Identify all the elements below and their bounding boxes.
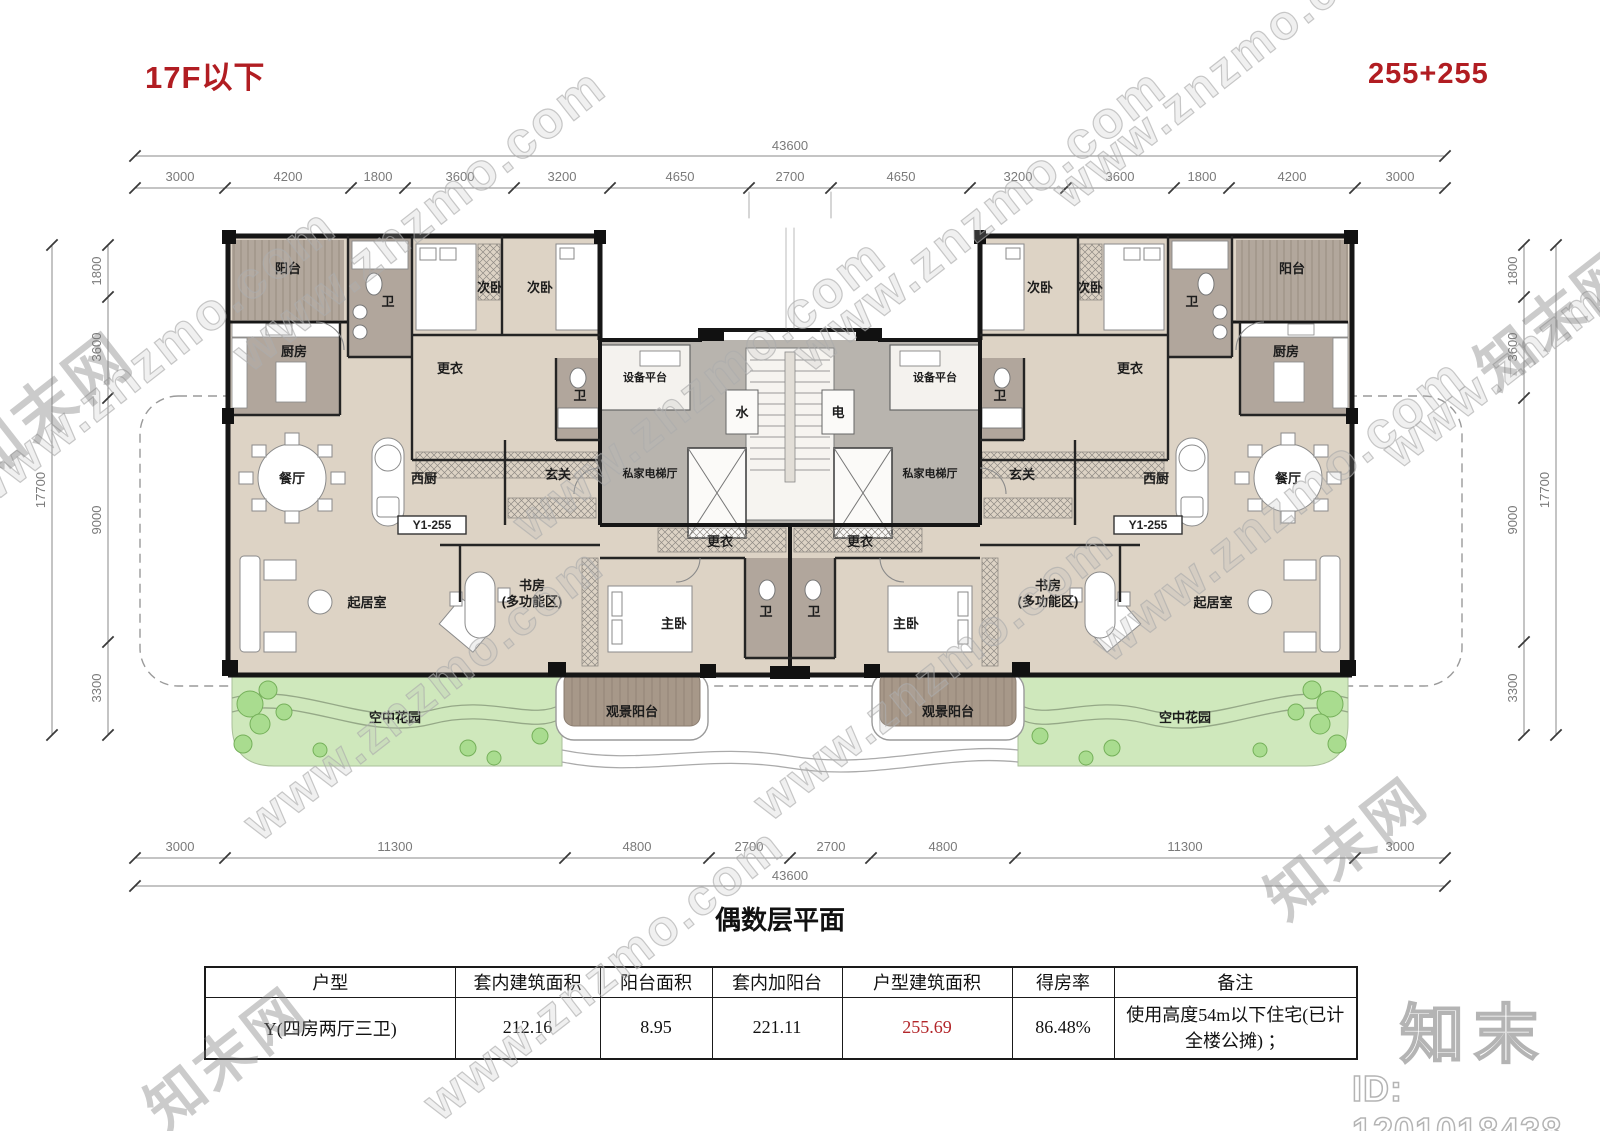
dim-top-9: 3600 — [1106, 169, 1135, 184]
room-label-electricity: 电 — [831, 405, 844, 420]
room-label-dining-right: 餐厅 — [1274, 471, 1301, 486]
sky-garden-left: 空中花园 — [232, 676, 562, 766]
table-header-row: 户型 套内建筑面积 阳台面积 套内加阳台 户型建筑面积 得房率 备注 — [205, 967, 1357, 997]
dim-top-8: 3200 — [1004, 169, 1033, 184]
core: 设备平台 设备平台 水 电 私家电梯厅 私家电梯厅 — [600, 340, 980, 538]
dim-top-5: 4650 — [666, 169, 695, 184]
room-label-elevator-hall-left: 私家电梯厅 — [623, 466, 678, 480]
room-label-bath-mid-left: 卫 — [573, 388, 586, 403]
room-label-equipment-right: 设备平台 — [913, 370, 957, 384]
site-logo: 知末 — [1400, 984, 1548, 1076]
room-label-master-left: 主卧 — [661, 616, 687, 631]
cell-gross-area: 255.69 — [842, 997, 1012, 1059]
cell-inner-area: 212.16 — [455, 997, 600, 1059]
table-data-row: Y(四房两厅三卫) 212.16 8.95 221.11 255.69 86.4… — [205, 997, 1357, 1059]
room-label-living-right: 起居室 — [1192, 595, 1232, 610]
dim-left-total: 17700 — [33, 472, 48, 508]
dim-right-total: 17700 — [1537, 472, 1552, 508]
room-label-study-right-1: 书房 — [1035, 578, 1061, 593]
dim-left-1: 3600 — [89, 333, 104, 362]
room-label-bedroom-left-1: 次卧 — [477, 280, 503, 295]
room-label-sky-garden-right: 空中花园 — [1159, 710, 1211, 725]
room-label-dressing-lower-right: 更衣 — [847, 534, 873, 549]
col-inner-plus-balcony: 套内加阳台 — [712, 967, 842, 997]
room-label-dressing-upper-right: 更衣 — [1117, 361, 1143, 376]
room-label-bedroom-left-2: 次卧 — [527, 280, 553, 295]
dim-left-3: 3300 — [89, 674, 104, 703]
dim-top-0: 3000 — [166, 169, 195, 184]
architectural-drawing: 17F以下 255+255 — [0, 0, 1600, 1131]
room-label-west-kitchen-left: 西厨 — [411, 471, 437, 486]
dim-top-4: 3200 — [548, 169, 577, 184]
room-label-elevator-hall-right: 私家电梯厅 — [903, 466, 958, 480]
room-label-dressing-lower-left: 更衣 — [707, 534, 733, 549]
col-remark: 备注 — [1114, 967, 1357, 997]
col-inner-area: 套内建筑面积 — [455, 967, 600, 997]
room-label-dining-left: 餐厅 — [278, 471, 305, 486]
dim-bottom-5: 4800 — [929, 839, 958, 854]
dim-bottom-7: 3000 — [1386, 839, 1415, 854]
table-title: 偶数层平面 — [204, 900, 1356, 937]
sofa-right — [1320, 556, 1340, 652]
room-label-view-balcony-left: 观景阳台 — [606, 704, 658, 719]
dim-top-total: 43600 — [772, 138, 808, 153]
room-label-kitchen-left: 厨房 — [281, 344, 307, 359]
unit-spec-table: 户型 套内建筑面积 阳台面积 套内加阳台 户型建筑面积 得房率 备注 Y(四房两… — [204, 966, 1358, 1060]
room-label-foyer-left: 玄关 — [545, 467, 571, 482]
cell-inner-plus-balcony: 221.11 — [712, 997, 842, 1059]
col-unit-type: 户型 — [205, 967, 455, 997]
room-label-kitchen-right: 厨房 — [1273, 344, 1299, 359]
dim-bottom-4: 2700 — [817, 839, 846, 854]
room-label-bedroom-right-1: 次卧 — [1077, 280, 1103, 295]
dim-top-12: 3000 — [1386, 169, 1415, 184]
dim-top-6: 2700 — [776, 169, 805, 184]
unit-code-left: Y1-255 — [413, 518, 452, 532]
view-balcony-right: 观景阳台 — [872, 672, 1024, 740]
room-label-balcony-left: 阳台 — [275, 261, 301, 276]
dim-bottom-3: 2700 — [735, 839, 764, 854]
dim-bottom-total: 43600 — [772, 868, 808, 883]
room-label-bath-top-right: 卫 — [1185, 294, 1198, 309]
room-label-bath-mid-right: 卫 — [993, 388, 1006, 403]
room-label-balcony-right: 阳台 — [1279, 261, 1305, 276]
study-table-right — [1085, 572, 1115, 638]
cell-unit-type: Y(四房两厅三卫) — [205, 997, 455, 1059]
room-label-living-left: 起居室 — [346, 595, 386, 610]
image-id-text: ID: 1201018438 — [1352, 1068, 1600, 1131]
col-efficiency: 得房率 — [1012, 967, 1114, 997]
room-label-study-left-2: (多功能区) — [502, 594, 563, 609]
room-label-equipment-left: 设备平台 — [623, 370, 667, 384]
dim-right-2: 9000 — [1505, 506, 1520, 535]
dim-bottom-2: 4800 — [623, 839, 652, 854]
sofa-left — [240, 556, 260, 652]
room-label-bath-master-left: 卫 — [759, 604, 772, 619]
dim-top-10: 1800 — [1188, 169, 1217, 184]
room-label-master-right: 主卧 — [893, 616, 919, 631]
room-label-foyer-right: 玄关 — [1009, 467, 1035, 482]
dim-top-3: 3600 — [446, 169, 475, 184]
dim-right-0: 1800 — [1505, 257, 1520, 286]
study-table-left — [465, 572, 495, 638]
room-label-bath-master-right: 卫 — [807, 604, 820, 619]
room-label-sky-garden-left: 空中花园 — [369, 710, 421, 725]
balcony-floor-right — [1236, 240, 1348, 320]
dim-left-0: 1800 — [89, 257, 104, 286]
dim-left-2: 9000 — [89, 506, 104, 535]
col-balcony-area: 阳台面积 — [600, 967, 712, 997]
room-label-dressing-upper-left: 更衣 — [437, 361, 463, 376]
dim-bottom-6: 11300 — [1167, 839, 1202, 854]
dim-top-2: 1800 — [364, 169, 393, 184]
dim-right-3: 3300 — [1505, 674, 1520, 703]
unit-code-right: Y1-255 — [1129, 518, 1168, 532]
cell-remark: 使用高度54m以下住宅(已计全楼公摊) ； — [1114, 997, 1357, 1059]
floor-plan-svg: 空中花园 空中花园 观景阳台 观景阳台 — [0, 0, 1600, 1131]
room-label-study-right-2: (多功能区) — [1018, 594, 1079, 609]
dim-top-7: 4650 — [887, 169, 916, 184]
col-gross-area: 户型建筑面积 — [842, 967, 1012, 997]
cell-efficiency: 86.48% — [1012, 997, 1114, 1059]
sky-garden-right: 空中花园 — [1018, 676, 1348, 766]
dim-bottom-1: 11300 — [377, 839, 412, 854]
room-label-water: 水 — [735, 405, 749, 420]
balcony-floor-left — [232, 240, 344, 320]
room-label-view-balcony-right: 观景阳台 — [922, 704, 974, 719]
walkway-curves — [562, 749, 1018, 772]
dim-top-11: 4200 — [1278, 169, 1307, 184]
room-label-west-kitchen-right: 西厨 — [1143, 471, 1169, 486]
view-balcony-left: 观景阳台 — [556, 672, 708, 740]
dim-top-1: 4200 — [274, 169, 303, 184]
room-label-bath-top-left: 卫 — [381, 294, 394, 309]
dim-bottom-0: 3000 — [166, 839, 195, 854]
dim-right-1: 3600 — [1505, 333, 1520, 362]
room-label-bedroom-right-2: 次卧 — [1027, 280, 1053, 295]
cell-balcony-area: 8.95 — [600, 997, 712, 1059]
room-label-study-left-1: 书房 — [519, 578, 545, 593]
